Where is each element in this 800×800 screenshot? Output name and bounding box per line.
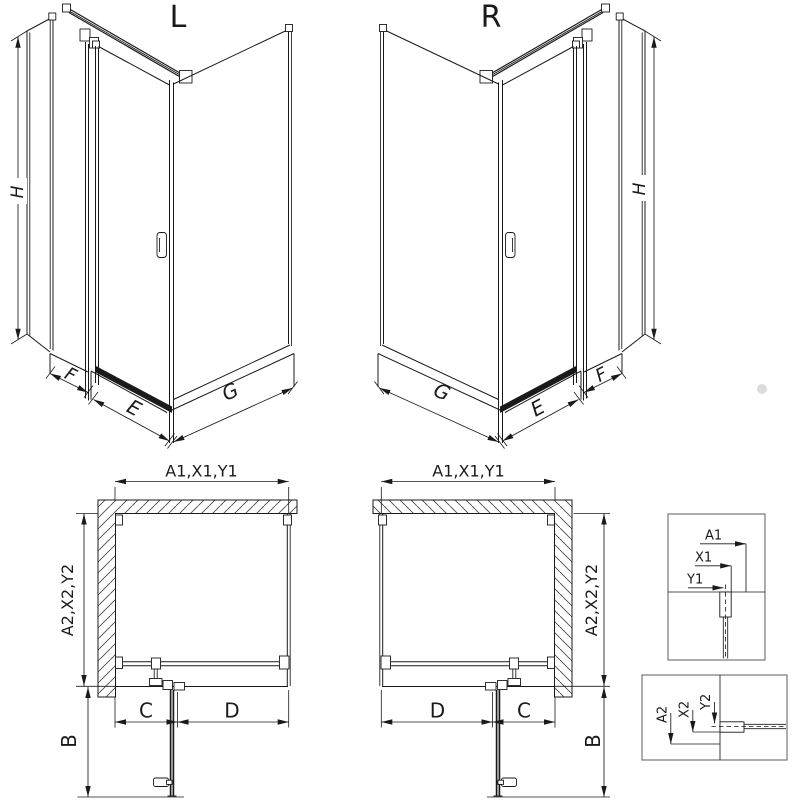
fixed-dim-label-left: D [224,699,239,723]
depth-dim-label-left: A2,X2,Y2 [58,564,77,636]
side-label-left: G [218,378,242,406]
plan-view-right [373,482,610,798]
title-left-variant: L [170,0,187,35]
detail-label-y1: Y1 [686,573,703,588]
panel-label-right: F [592,363,611,387]
shower-enclosure-technical-drawing: A1 X1 Y1 A2 X2 Y2 L R H H F E G G E F A1… [0,0,800,800]
detail-box-depth: A2 X2 Y2 [642,675,787,760]
detail-label-y2: Y2 [699,694,714,711]
depth-dim-label-right: A2,X2,Y2 [582,564,601,636]
door-dim-label-right: C [517,699,531,723]
swing-dim-label-right: B [581,734,605,748]
detail-label-a1: A1 [705,529,722,544]
side-label-right: G [430,378,454,406]
fixed-dim-label-right: D [430,699,445,723]
plan-view-left [76,482,297,798]
detail-label-x1: X1 [695,551,712,566]
panel-label-left: F [61,363,80,387]
watermark-dot [757,384,767,394]
iso-view-left [11,4,298,449]
detail-box-width: A1 X1 Y1 [668,514,765,660]
title-right-variant: R [481,0,502,35]
width-dim-label-right: A1,X1,Y1 [432,462,504,481]
detail-label-a2: A2 [656,706,671,723]
height-label-right: H [630,182,650,195]
height-label-left: H [8,185,28,198]
door-dim-label-left: C [139,699,153,723]
detail-label-x2: X2 [678,701,693,718]
width-dim-label-left: A1,X1,Y1 [165,462,237,481]
swing-dim-label-left: B [57,734,81,748]
iso-view-right [375,4,662,449]
drawing-canvas: A1 X1 Y1 A2 X2 Y2 L R H H F E G G E F A1… [0,0,800,800]
